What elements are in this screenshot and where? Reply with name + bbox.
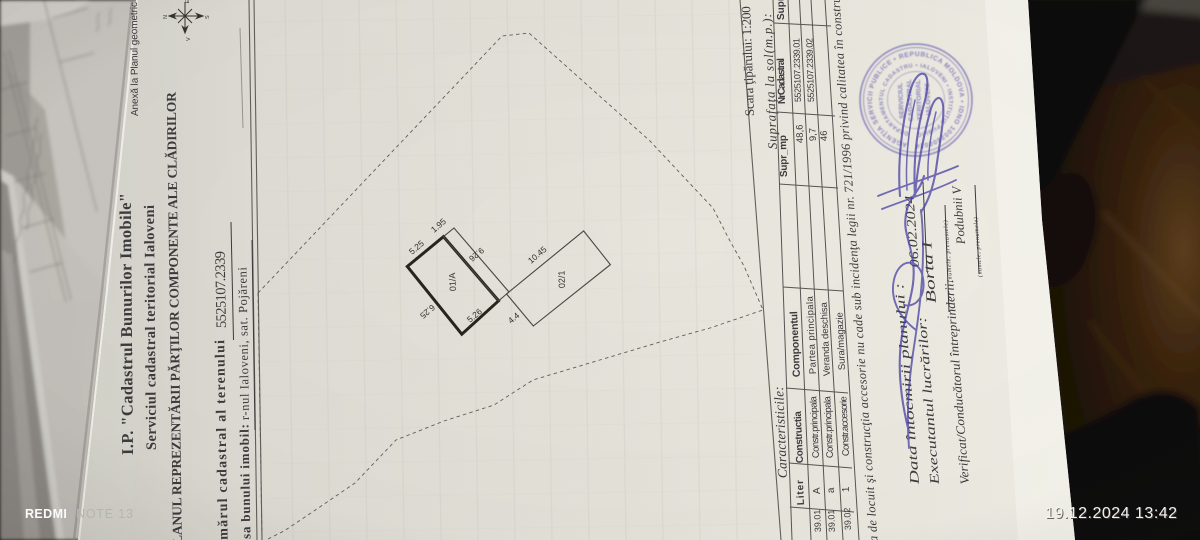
svg-text:NOTE 13: NOTE 13: [76, 507, 134, 521]
svg-text:REDMI: REDMI: [25, 507, 67, 521]
svg-text:19.12.2024 13:42: 19.12.2024 13:42: [1045, 505, 1178, 522]
